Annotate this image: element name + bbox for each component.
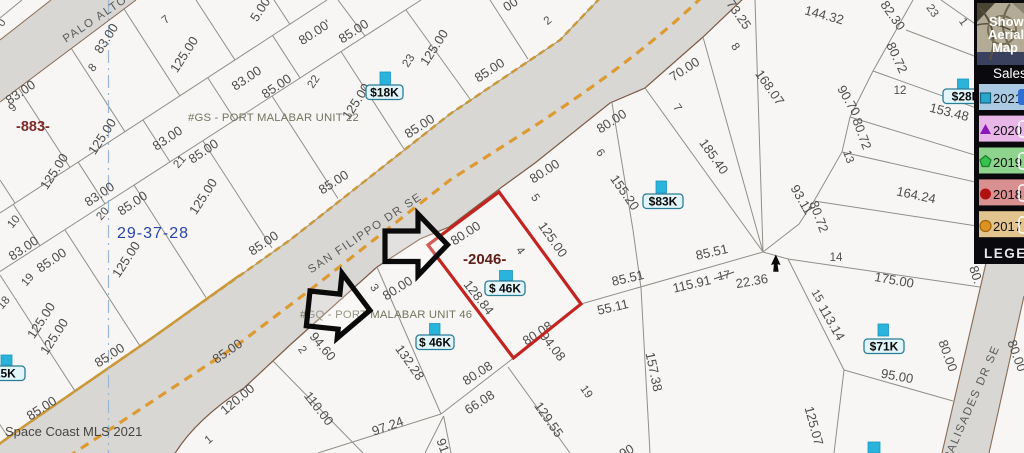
svg-text:Sales: Sales bbox=[993, 66, 1024, 81]
svg-text:2018: 2018 bbox=[993, 187, 1022, 202]
svg-text:$ 46K: $ 46K bbox=[419, 336, 451, 350]
svg-text:2017: 2017 bbox=[993, 219, 1022, 234]
svg-text:$71K: $71K bbox=[870, 340, 899, 354]
svg-text:2020: 2020 bbox=[993, 123, 1022, 138]
svg-text:-883-: -883- bbox=[16, 119, 50, 135]
svg-text:29-37-28: 29-37-28 bbox=[117, 225, 189, 242]
svg-text:$83K: $83K bbox=[649, 195, 678, 209]
svg-text:2019: 2019 bbox=[993, 155, 1022, 170]
svg-text:-2046-: -2046- bbox=[463, 251, 506, 268]
svg-text:$ 46K: $ 46K bbox=[489, 282, 521, 296]
svg-text:14: 14 bbox=[830, 252, 843, 264]
svg-text:Space Coast MLS 2021: Space Coast MLS 2021 bbox=[5, 424, 142, 439]
svg-text:LEGEND: LEGEND bbox=[984, 246, 1024, 261]
svg-text:$15K: $15K bbox=[0, 367, 16, 381]
svg-text:$18K: $18K bbox=[370, 86, 399, 100]
svg-text:Map: Map bbox=[992, 40, 1018, 55]
svg-text:#GS - PORT MALABAR UNIT 22: #GS - PORT MALABAR UNIT 22 bbox=[188, 112, 359, 124]
svg-text:17: 17 bbox=[717, 269, 732, 283]
svg-text:2021: 2021 bbox=[993, 91, 1022, 106]
svg-text:12: 12 bbox=[894, 85, 907, 97]
